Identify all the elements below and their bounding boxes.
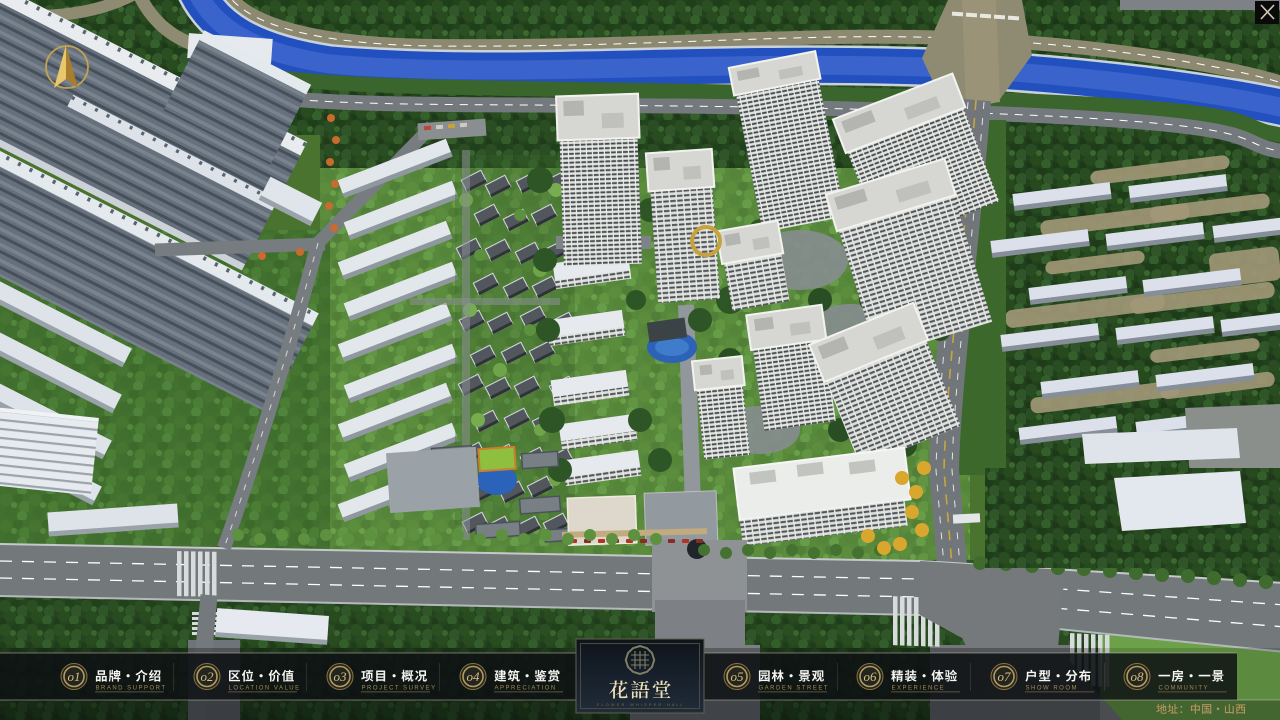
svg-text:o7: o7 (998, 669, 1012, 684)
svg-text:o5: o5 (731, 669, 745, 684)
svg-text:o4: o4 (467, 669, 481, 684)
svg-text:BRAND SUPPORT: BRAND SUPPORT (96, 686, 167, 692)
svg-text:o1: o1 (68, 669, 81, 684)
svg-text:o2: o2 (201, 669, 215, 684)
svg-text:COMMUNITY: COMMUNITY (1159, 686, 1210, 692)
svg-text:APPRECIATION: APPRECIATION (495, 686, 557, 692)
svg-text:o8: o8 (1131, 669, 1145, 684)
svg-text:GARDEN STREET: GARDEN STREET (759, 686, 830, 692)
svg-text:F L O W E R · W H I S P E R ·: F L O W E R · W H I S P E R · H A L L (597, 702, 683, 707)
svg-text:o6: o6 (864, 669, 878, 684)
svg-text:EXPERIENCE: EXPERIENCE (892, 686, 946, 692)
svg-text:LOCATION VALUE: LOCATION VALUE (229, 686, 301, 692)
svg-text:SHOW ROOM: SHOW ROOM (1026, 686, 1079, 692)
svg-text:PROJECT SURVEY: PROJECT SURVEY (362, 686, 437, 692)
svg-text:o3: o3 (334, 669, 348, 684)
